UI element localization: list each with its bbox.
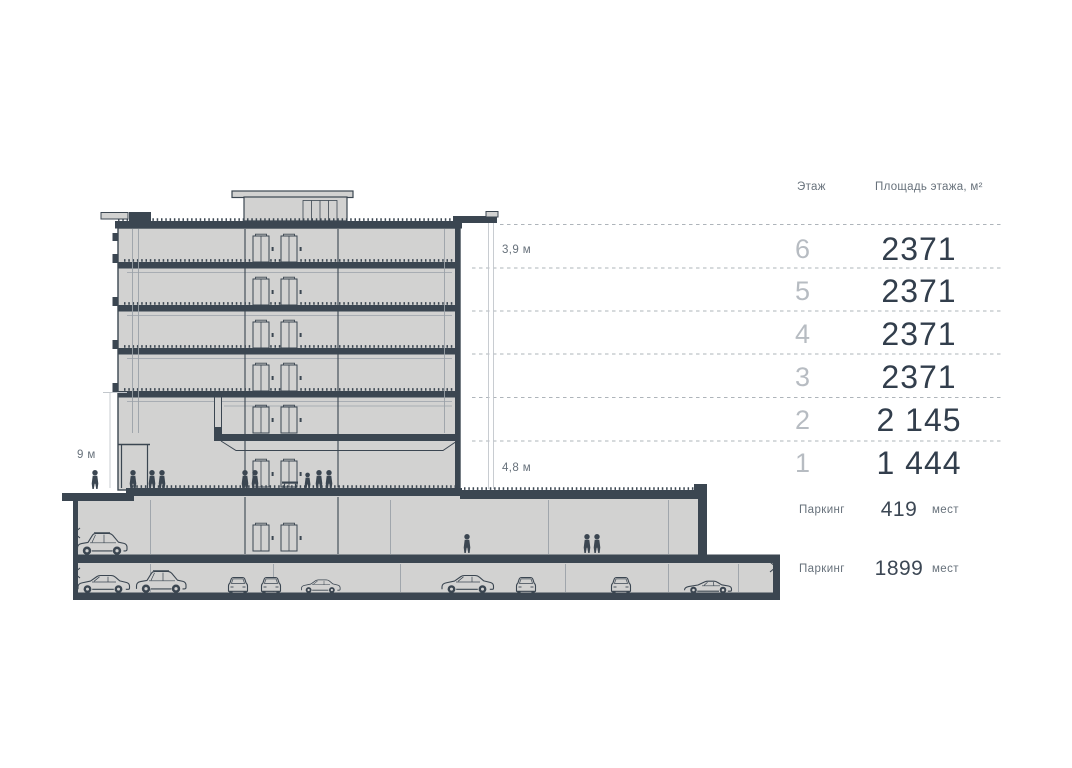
dimension-label-lobby: 9 м [77, 449, 96, 461]
building-section-drawing: 3,9 м 9 м 4,8 м [0, 0, 1072, 768]
dimension-label-ground-floor: 4,8 м [502, 462, 531, 474]
dimension-label-typical-floor: 3,9 м [502, 244, 531, 256]
building-section-page: 3,9 м 9 м 4,8 м Этаж Площадь этажа, м² 6… [0, 0, 1072, 768]
underground-structure [75, 496, 775, 594]
roof-penthouse [232, 191, 353, 222]
